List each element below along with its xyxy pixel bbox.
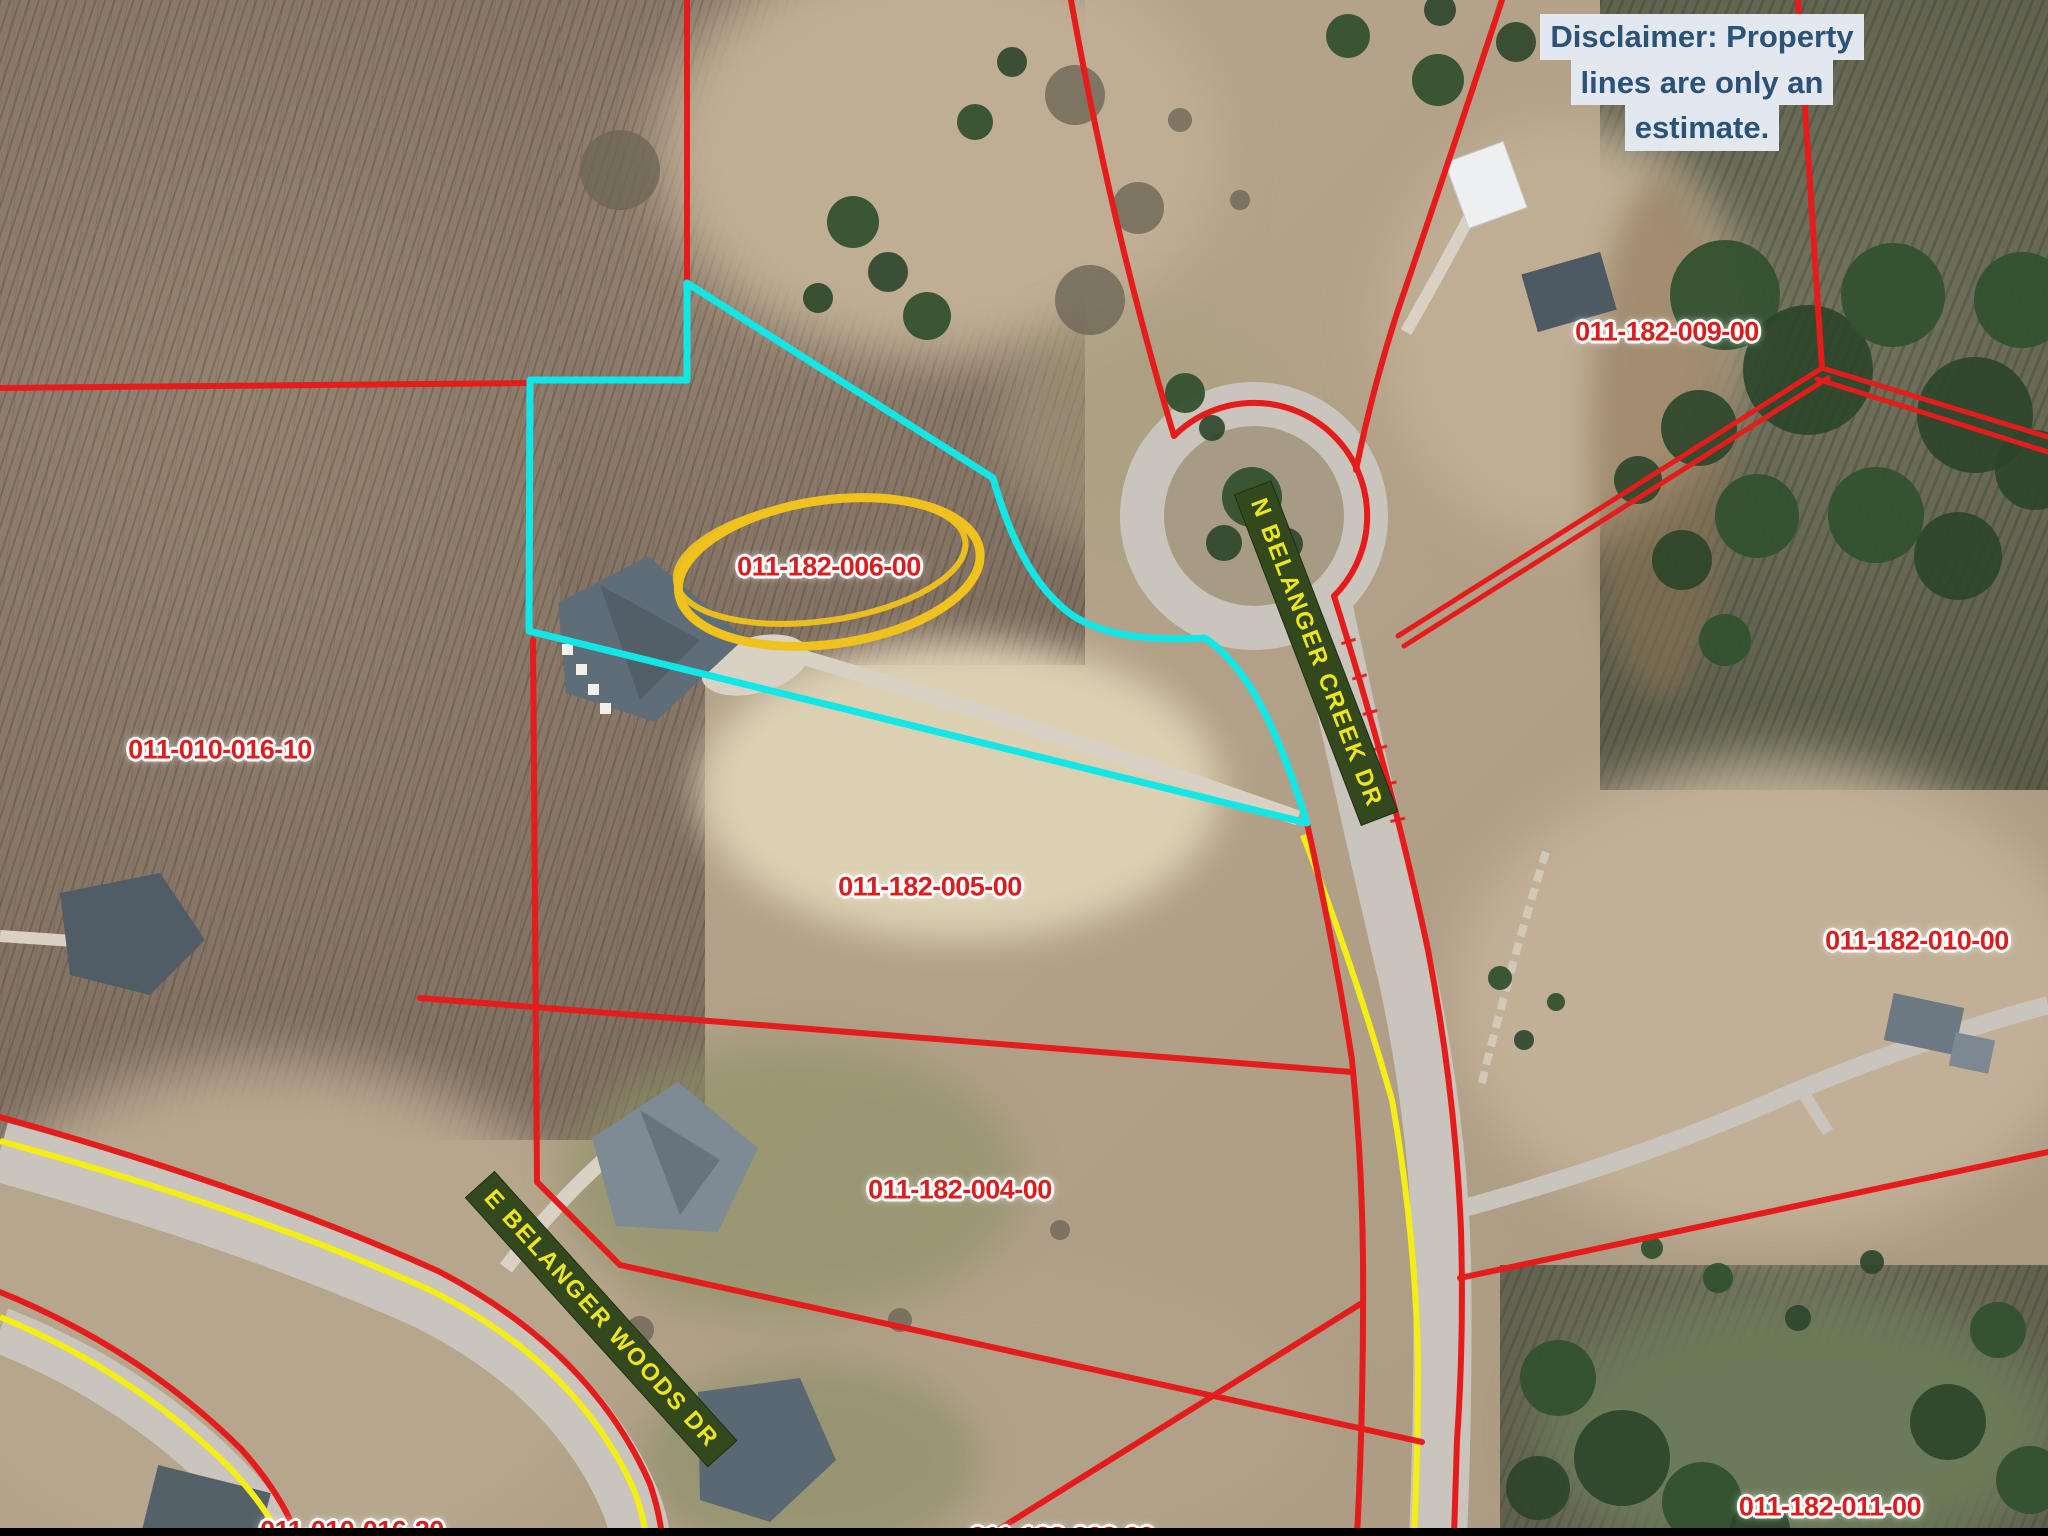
parcel-label-016-10: 011-010-016-10 bbox=[128, 735, 312, 766]
parcel-label-010: 011-182-010-00 bbox=[1825, 926, 2009, 957]
patio-dot bbox=[562, 644, 573, 655]
parcel-line bbox=[1460, 1152, 2048, 1278]
parcel-label-006-highlighted: 011-182-006-00 bbox=[737, 552, 921, 583]
parcel-label-011: 011-182-011-00 bbox=[1739, 1492, 1921, 1523]
disclaimer-line: Disclaimer: Property bbox=[1540, 14, 1863, 60]
parcel-map-canvas: 011-182-009-00 011-182-006-00 011-010-01… bbox=[0, 0, 2048, 1536]
parcel-line bbox=[0, 383, 530, 388]
parcel-line bbox=[420, 998, 1352, 1072]
patio-dot bbox=[588, 684, 599, 695]
patio-dot bbox=[576, 664, 587, 675]
patio-dot bbox=[600, 703, 611, 714]
bottom-black-bar bbox=[0, 1528, 2048, 1536]
disclaimer-box: Disclaimer: Property lines are only an e… bbox=[1537, 14, 1867, 151]
driveway-east-spur bbox=[1800, 1088, 1828, 1132]
parcel-label-005: 011-182-005-00 bbox=[838, 872, 1022, 903]
house-010-wing bbox=[1949, 1032, 1995, 1074]
disclaimer-line: estimate. bbox=[1625, 105, 1779, 151]
barn-009 bbox=[1445, 142, 1527, 229]
parcel-label-009: 011-182-009-00 bbox=[1575, 317, 1759, 348]
parcel-line bbox=[533, 640, 537, 1182]
house-016 bbox=[60, 873, 205, 995]
parcel-line-group bbox=[0, 0, 2048, 1536]
parcel-label-004: 011-182-004-00 bbox=[868, 1175, 1052, 1206]
disclaimer-line: lines are only an bbox=[1571, 60, 1834, 106]
driveway-005 bbox=[795, 655, 1298, 818]
building-group bbox=[60, 142, 1995, 1536]
trail-010 bbox=[1480, 852, 1546, 1090]
map-lines-overlay bbox=[0, 0, 2048, 1536]
parcel-line bbox=[988, 1303, 1362, 1536]
driveway-009 bbox=[1406, 208, 1474, 332]
